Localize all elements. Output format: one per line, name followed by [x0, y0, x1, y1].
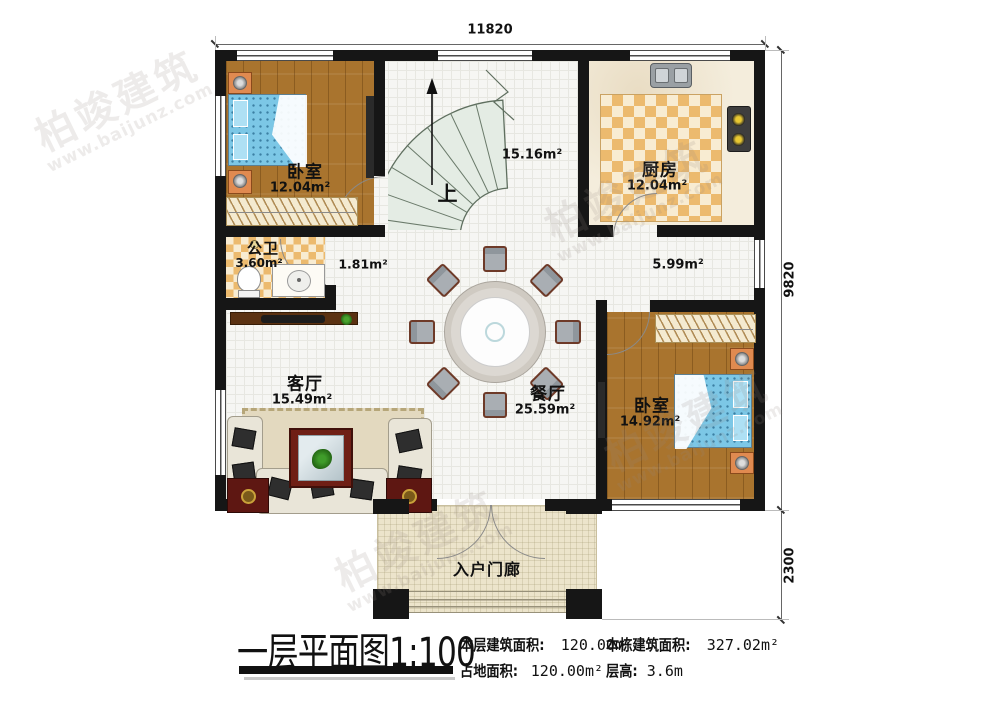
dim-right-porch-value: 2300 [783, 547, 798, 583]
closet-bedroom1 [226, 197, 358, 226]
stat-label: 本栋建筑面积: [606, 634, 690, 655]
dim-right-main-value: 9820 [783, 261, 798, 297]
room-area-living: 15.49m² [272, 393, 332, 408]
wall-bedroom1-hall [374, 61, 385, 176]
window-right-corridor [754, 240, 765, 288]
title-underline-shadow [244, 677, 455, 680]
lamp-icon [735, 352, 749, 366]
side-table [227, 478, 269, 513]
window-left-living [215, 390, 226, 475]
tv-bedroom1 [366, 96, 374, 178]
lamp-icon [735, 456, 749, 470]
sink-bowl [655, 68, 669, 83]
stat-value: 3.6m [647, 662, 683, 680]
dining-chair [555, 320, 581, 344]
nightstand [228, 170, 252, 194]
wall-bathroom-bottom [215, 298, 336, 310]
room-area-bathroom: 3.60m² [235, 256, 282, 270]
stairs-up-label: 上 [438, 178, 459, 207]
stat-label: 层高: [606, 660, 638, 681]
title-underline [239, 666, 453, 674]
table-knob-icon [241, 489, 256, 504]
sink-bowl [674, 68, 688, 83]
nightstand [730, 348, 754, 370]
window-left-bedroom1 [215, 96, 226, 176]
closet-bedroom2 [655, 314, 756, 343]
room-label-dining: 餐厅 [530, 380, 566, 405]
cushion [232, 427, 257, 450]
nightstand [228, 72, 252, 94]
bed-blanket [675, 375, 727, 449]
room-area-bedroom2: 14.92m² [620, 415, 680, 430]
stat-label: 本层建筑面积: [460, 634, 544, 655]
dim-ext [602, 619, 789, 620]
bed-bedroom1 [228, 94, 306, 166]
dining-table-center [485, 322, 505, 342]
window-bottom-bedroom2 [612, 499, 740, 511]
dining-chair [409, 320, 435, 344]
dim-line-top [215, 44, 765, 45]
dim-top-value: 11820 [467, 23, 512, 38]
stat-value: 327.02m² [707, 636, 779, 654]
faucet-icon [297, 278, 301, 282]
porch-steps [409, 591, 566, 613]
burner-icon [732, 113, 745, 126]
cushion [395, 429, 423, 454]
burner-icon [732, 133, 745, 146]
room-label-porch: 入户门廊 [453, 556, 521, 580]
plant-icon [341, 314, 352, 325]
stat-value: 120.00m² [531, 662, 603, 680]
watermark-url: www.baijunz.com [45, 81, 217, 177]
bed-pillow [233, 100, 248, 127]
wall-hall-kitchen [578, 61, 589, 237]
room-label-bedroom2: 卧室 [634, 392, 670, 417]
room-label-living: 客厅 [287, 370, 323, 395]
lamp-icon [233, 174, 247, 188]
tv-console [230, 312, 358, 325]
wall-left [215, 475, 226, 511]
window-top-kitchen [630, 50, 730, 61]
dim-ext [765, 510, 789, 511]
bed-bedroom2 [674, 374, 752, 448]
dining-chair [483, 392, 507, 418]
nightstand [730, 452, 754, 474]
area-stair-hall: 15.16m² [502, 148, 562, 163]
dim-ext [765, 50, 789, 51]
stat-floor-height: 层高: 3.6m [606, 660, 683, 681]
closet-rod [658, 329, 753, 331]
porch-wall-stub [566, 499, 602, 514]
bed-pillow [733, 381, 748, 408]
area-hallway-small: 1.81m² [338, 257, 387, 272]
toilet-tank [238, 290, 260, 298]
room-area-kitchen: 12.04m² [627, 179, 687, 194]
window-top-bedroom1 [237, 50, 333, 61]
wall-kitchen-bottom [578, 225, 613, 237]
tv-bedroom2 [598, 382, 605, 438]
coffee-table [289, 428, 353, 488]
wall-bathroom-right [325, 285, 336, 298]
wall-right [754, 50, 765, 240]
wall-top [532, 50, 630, 61]
wall-bedroom1-bottom [215, 225, 385, 237]
wall-bedroom2-top [650, 300, 754, 312]
closet-rod [229, 212, 355, 214]
bed-pillow [233, 134, 248, 160]
stat-total-area: 本栋建筑面积: 327.02m² [606, 634, 779, 655]
dim-ext [215, 36, 216, 50]
bed-pillow [733, 415, 748, 441]
bed-blanket [257, 95, 307, 167]
wall-kitchen-bottom [657, 225, 754, 237]
room-area-dining: 25.59m² [515, 403, 575, 418]
porch-column [373, 589, 409, 619]
dim-ext [765, 36, 766, 50]
lamp-icon [233, 76, 247, 90]
wall-left [215, 176, 226, 390]
porch-wall-stub [373, 499, 409, 514]
porch-column [566, 589, 602, 619]
floor-plan-page: 11820 9820 2300 卧室 12.04m² 厨房 12.04m² 15… [0, 0, 1000, 706]
stat-label: 占地面积: [460, 660, 518, 681]
cushion [350, 479, 374, 501]
room-label-bedroom1: 卧室 [287, 158, 323, 183]
stove [727, 106, 751, 152]
stat-footprint: 占地面积: 120.00m² [460, 660, 603, 681]
watermark: 柏竣建筑 www.baijunz.com [26, 43, 217, 177]
kitchen-sink [650, 63, 692, 88]
area-corridor: 5.99m² [652, 258, 703, 273]
watermark-brand: 柏竣建筑 [26, 43, 209, 161]
room-area-bedroom1: 12.04m² [270, 181, 330, 196]
wall-left [215, 50, 226, 96]
dining-chair [483, 246, 507, 272]
room-label-kitchen: 厨房 [642, 156, 678, 181]
tv-living [261, 315, 325, 323]
